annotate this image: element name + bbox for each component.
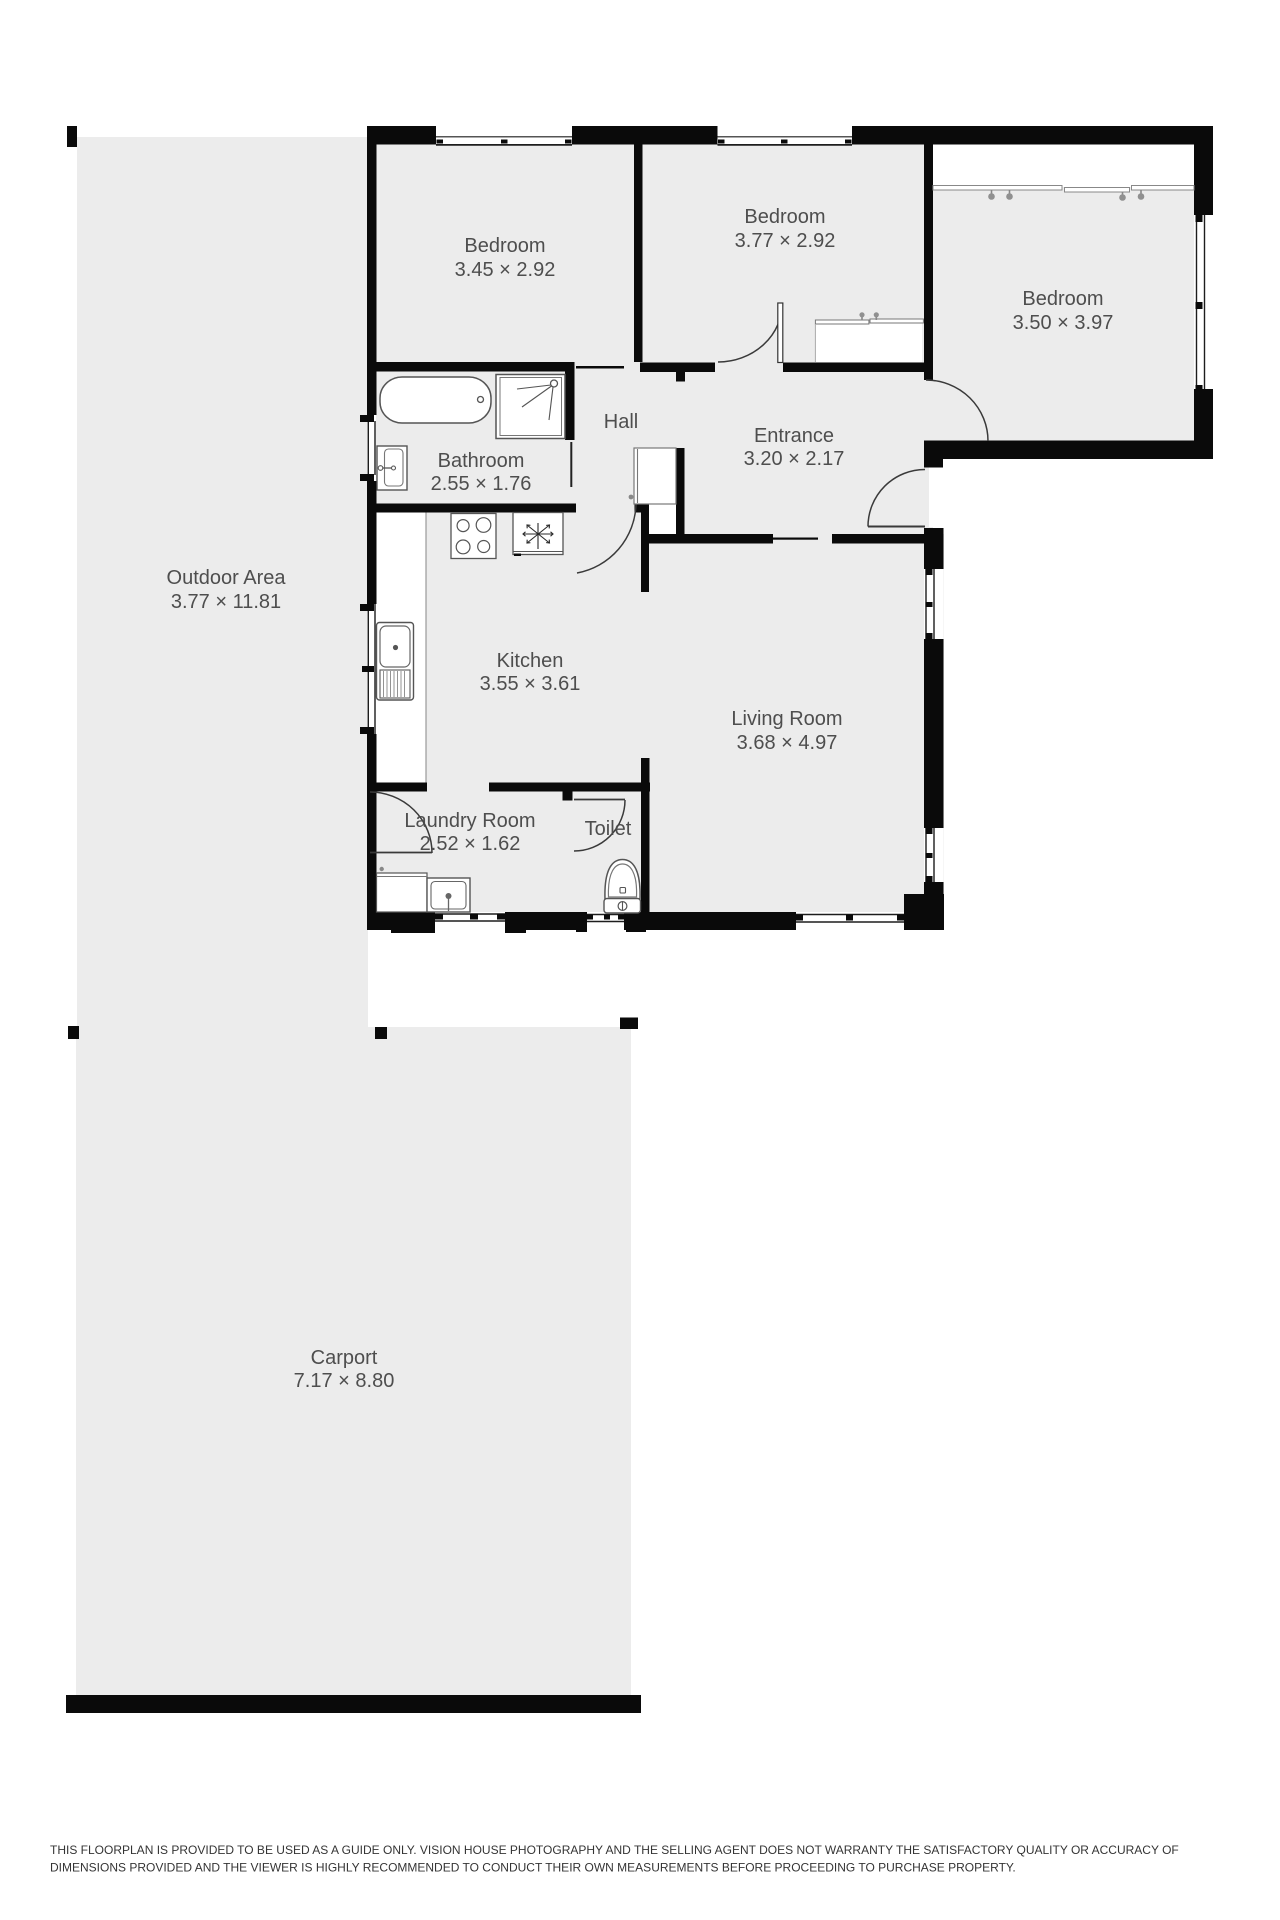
svg-text:Laundry Room: Laundry Room <box>404 810 535 832</box>
svg-text:7.17 × 8.80: 7.17 × 8.80 <box>294 1370 395 1392</box>
svg-text:Bedroom: Bedroom <box>744 206 825 228</box>
svg-text:3.77 × 11.81: 3.77 × 11.81 <box>171 591 281 613</box>
svg-text:3.68 × 4.97: 3.68 × 4.97 <box>737 732 838 754</box>
svg-text:THIS FLOORPLAN IS PROVIDED TO: THIS FLOORPLAN IS PROVIDED TO BE USED AS… <box>50 1843 1179 1857</box>
svg-text:Bedroom: Bedroom <box>464 235 545 257</box>
svg-text:Carport: Carport <box>311 1347 378 1369</box>
svg-text:Hall: Hall <box>604 411 638 433</box>
svg-text:Entrance: Entrance <box>754 425 834 447</box>
svg-text:Kitchen: Kitchen <box>497 650 564 672</box>
svg-text:3.55 × 3.61: 3.55 × 3.61 <box>480 673 581 695</box>
svg-text:3.45 × 2.92: 3.45 × 2.92 <box>455 259 556 281</box>
svg-text:3.50 × 3.97: 3.50 × 3.97 <box>1013 312 1114 334</box>
svg-text:Bedroom: Bedroom <box>1022 288 1103 310</box>
svg-text:2.52 × 1.62: 2.52 × 1.62 <box>420 833 521 855</box>
svg-text:Toilet: Toilet <box>585 818 632 840</box>
svg-text:3.77 × 2.92: 3.77 × 2.92 <box>735 230 836 252</box>
svg-text:Living Room: Living Room <box>731 708 842 730</box>
svg-text:Bathroom: Bathroom <box>438 450 525 472</box>
svg-text:3.20 × 2.17: 3.20 × 2.17 <box>744 448 845 470</box>
svg-text:DIMENSIONS PROVIDED AND THE VI: DIMENSIONS PROVIDED AND THE VIEWER IS HI… <box>50 1861 1016 1875</box>
svg-text:2.55 × 1.76: 2.55 × 1.76 <box>431 473 532 495</box>
svg-text:Outdoor Area: Outdoor Area <box>167 567 287 589</box>
